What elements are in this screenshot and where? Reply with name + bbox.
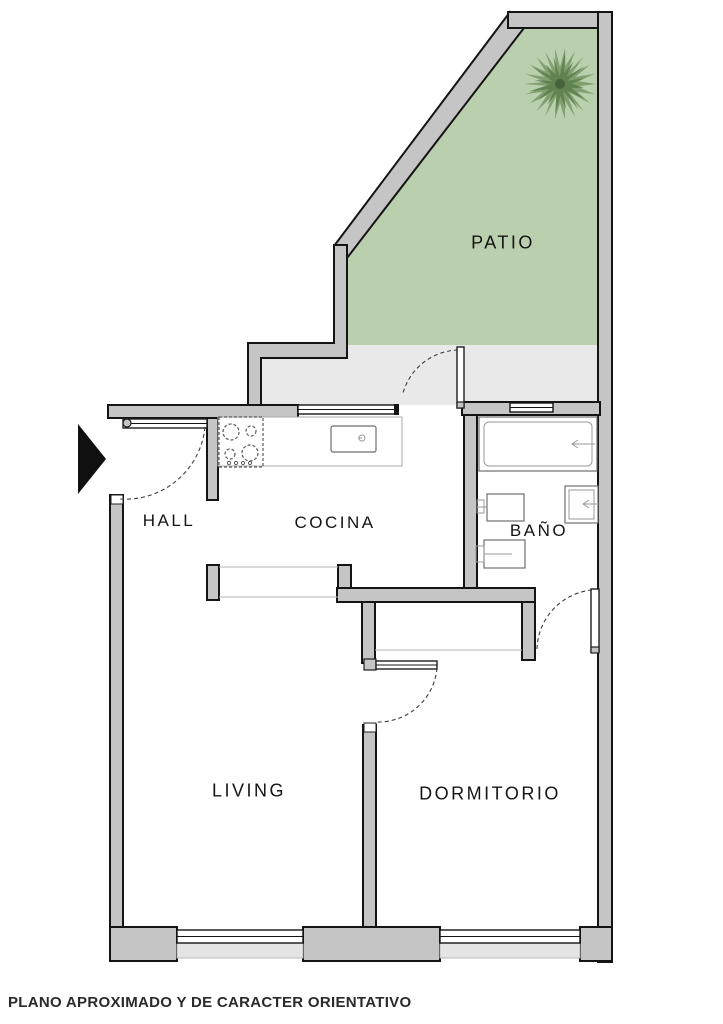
room-label-bano: BAÑO — [510, 521, 568, 541]
wall-segment — [108, 405, 298, 418]
room-label-living: LIVING — [212, 781, 286, 802]
palm-tree-center — [555, 79, 565, 89]
shower-unit-icon — [565, 486, 600, 523]
wall-segment — [110, 495, 123, 930]
bath-sink-basin — [487, 494, 524, 521]
wall-segment — [362, 602, 375, 663]
bathroom-door-swing-arc — [537, 590, 592, 649]
bedroom-door — [364, 659, 437, 722]
bath-sink-icon — [477, 494, 524, 521]
bedroom-door-hinge — [364, 659, 376, 670]
room-label-patio: PATIO — [471, 233, 535, 254]
room-label-cocina: COCINA — [294, 513, 375, 533]
bathroom-door-leaf — [591, 589, 599, 652]
bedroom-door-swing-arc — [377, 668, 437, 722]
bathroom-door — [537, 589, 599, 653]
entry-door — [120, 419, 207, 499]
kitchen-fixtures — [218, 417, 402, 467]
wall-segment — [522, 602, 535, 660]
wall-segment — [598, 12, 612, 962]
toilet-icon — [476, 540, 525, 568]
bathroom-door-hinge — [591, 647, 599, 653]
patio-door-leaf — [457, 347, 464, 408]
bathtub-icon — [479, 417, 597, 471]
window-sill — [177, 943, 303, 958]
wall-segment — [110, 927, 177, 961]
wall-segment — [580, 927, 612, 961]
wall-segment — [363, 725, 376, 930]
window-sill — [440, 943, 580, 958]
wall-segment — [464, 415, 477, 590]
wall-segment — [207, 418, 218, 500]
entry-door-hinge — [123, 419, 131, 427]
wall-segment — [337, 588, 535, 602]
wall-segment — [508, 12, 612, 28]
door-jamb — [364, 723, 376, 732]
window-jamb — [394, 404, 399, 415]
floor-plan-svg — [0, 0, 723, 1024]
sink-basin — [331, 426, 376, 452]
room-label-dormitorio: DORMITORIO — [419, 784, 561, 805]
kitchen-sink-icon — [331, 426, 376, 452]
wall-segment — [303, 927, 440, 961]
floor-plan: PATIO HALL COCINA BAÑO LIVING DORMITORIO… — [0, 0, 723, 1024]
disclaimer-text: PLANO APROXIMADO Y DE CARACTER ORIENTATI… — [8, 994, 411, 1011]
room-label-hall: HALL — [143, 511, 196, 531]
patio-door-hinge — [457, 402, 464, 408]
windows — [177, 403, 580, 958]
entry-door-swing-arc — [120, 427, 205, 499]
wall-segment — [207, 565, 219, 600]
bathroom-fixtures — [476, 417, 600, 568]
entrance-arrow-icon — [78, 424, 106, 494]
